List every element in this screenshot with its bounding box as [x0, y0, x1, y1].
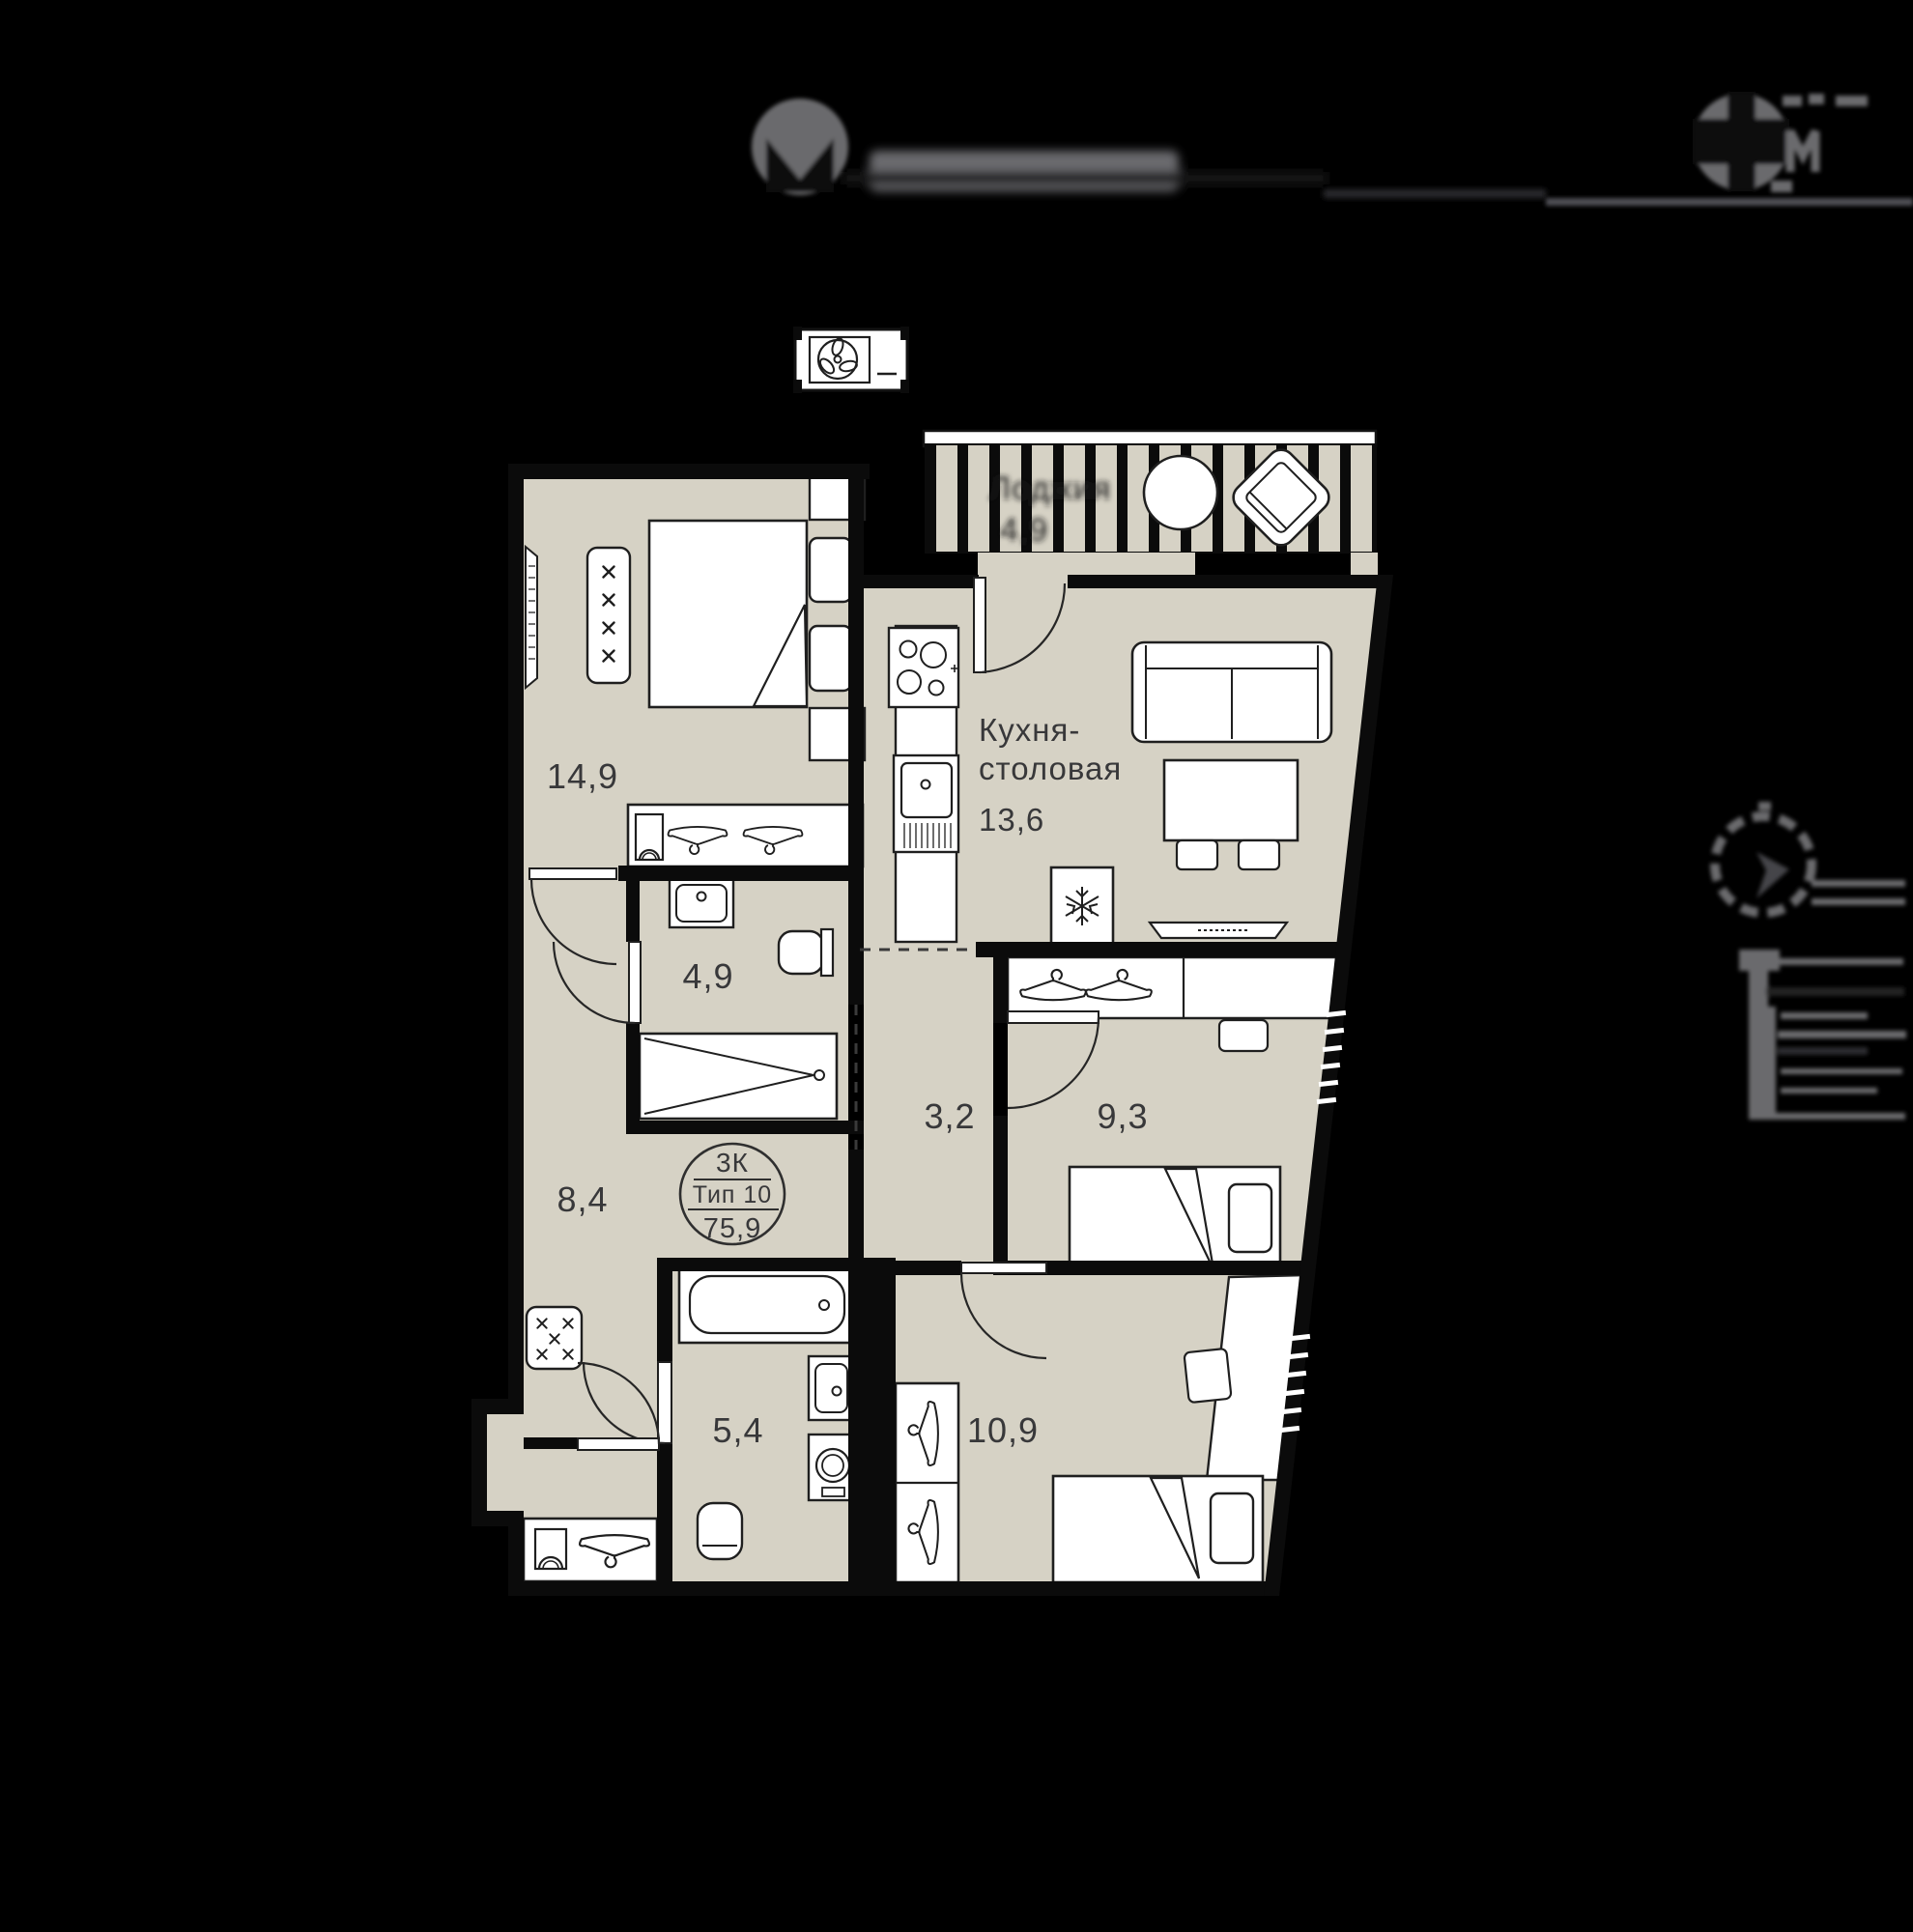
label-bedroom-bottom-area: 10,9 [967, 1410, 1039, 1450]
legend-rows-blurred [1739, 950, 1906, 1120]
toilet [779, 929, 833, 976]
chair [1177, 840, 1217, 869]
shower-tray [640, 1034, 837, 1119]
compass-rose-icon [1715, 802, 1812, 913]
street-label-blurred [843, 151, 1327, 191]
loggia-area: 4,9 [1000, 512, 1048, 549]
loggia-name: Лоджия [989, 470, 1111, 507]
label-kitchen-area: 13,6 [979, 802, 1044, 838]
dining-table [1164, 760, 1298, 840]
pillow [1211, 1493, 1253, 1563]
round-table [1144, 456, 1217, 529]
hallway-furniture [527, 1307, 582, 1369]
bathtub [679, 1266, 857, 1343]
badge-total-area: 75,9 [703, 1213, 761, 1244]
pillow [1229, 1184, 1271, 1252]
badge-rooms: 3К [716, 1148, 749, 1178]
wardrobe-main [628, 805, 863, 867]
metro-icon-blurred [1693, 92, 1868, 192]
header-underline-gray [1546, 198, 1913, 206]
wall-top [508, 464, 870, 479]
fridge [1051, 867, 1113, 945]
sofa [1132, 642, 1331, 742]
floorplan-screen: Лоджия 4,9 [0, 0, 1913, 1932]
entry-closet [524, 1519, 657, 1581]
pillow [810, 626, 851, 691]
floor-entry-notch [487, 1412, 526, 1513]
toilet [698, 1503, 742, 1559]
pouf [527, 1307, 582, 1369]
single-bed [1053, 1476, 1263, 1582]
shelf-icon [535, 1529, 566, 1569]
label-bedroom-middle-area: 9,3 [1097, 1096, 1148, 1136]
side-legend-blurred [1715, 802, 1906, 1120]
pillow [810, 538, 851, 602]
label-bathroom-top-area: 4,9 [682, 956, 733, 996]
label-hallway-area: 8,4 [557, 1179, 608, 1219]
badge-type: Тип 10 [693, 1181, 772, 1208]
washbasin [670, 879, 733, 927]
label-bathroom-bottom-area: 5,4 [712, 1410, 763, 1450]
compass-logo-icon [752, 99, 848, 195]
desk-chair [1184, 1349, 1231, 1403]
wall-shaft [848, 1261, 896, 1596]
ac-unit [793, 327, 909, 393]
shelf-icon [636, 814, 663, 860]
desk-chair [1219, 1020, 1268, 1051]
header [752, 92, 1913, 206]
loggia: Лоджия 4,9 [924, 431, 1378, 589]
tv-on-stand [1150, 923, 1287, 938]
label-bedroom-main-area: 14,9 [547, 756, 618, 796]
label-corridor-area: 3,2 [924, 1096, 975, 1136]
kitchen-sink [894, 755, 958, 852]
tv-wall-mounted [526, 547, 537, 688]
dresser [587, 548, 630, 683]
stove [889, 628, 958, 707]
header-underline-dark [1324, 189, 1546, 198]
chair [1239, 840, 1279, 869]
label-kitchen-line2: столовая [979, 751, 1122, 786]
label-kitchen-line1: Кухня- [979, 712, 1080, 748]
wall-left [508, 464, 524, 1412]
closet-tall [896, 1383, 958, 1582]
apartment-badge: 3К Тип 10 75,9 [680, 1144, 785, 1244]
single-bed [1070, 1167, 1280, 1273]
